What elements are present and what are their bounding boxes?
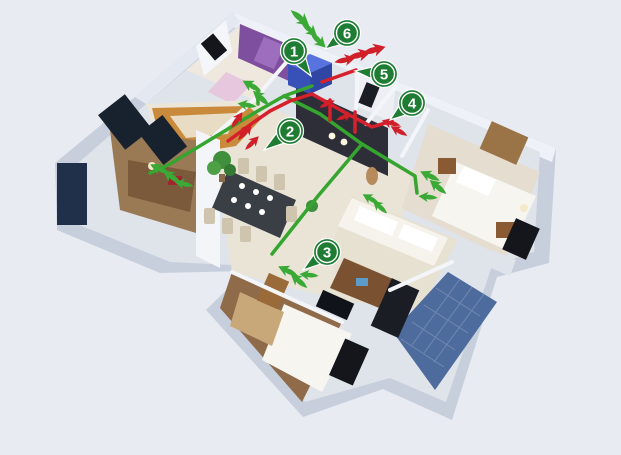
table-tray	[356, 278, 368, 286]
pin-number: 2	[286, 124, 294, 141]
illustration-stage: 123456	[0, 0, 621, 455]
bedroom-right-lamp	[520, 204, 528, 212]
vase	[366, 167, 378, 185]
pin-number: 5	[380, 67, 388, 84]
pin-number: 4	[408, 96, 417, 113]
left-planter-strip	[57, 163, 87, 225]
pin-number: 6	[343, 26, 351, 43]
wall-sconce-2	[341, 139, 348, 146]
floorplan-svg: 123456	[0, 0, 621, 455]
nightstand-1	[438, 158, 456, 174]
wall-sconce-1	[329, 133, 336, 140]
pin-number: 1	[290, 44, 298, 61]
pin-number: 3	[323, 245, 331, 262]
